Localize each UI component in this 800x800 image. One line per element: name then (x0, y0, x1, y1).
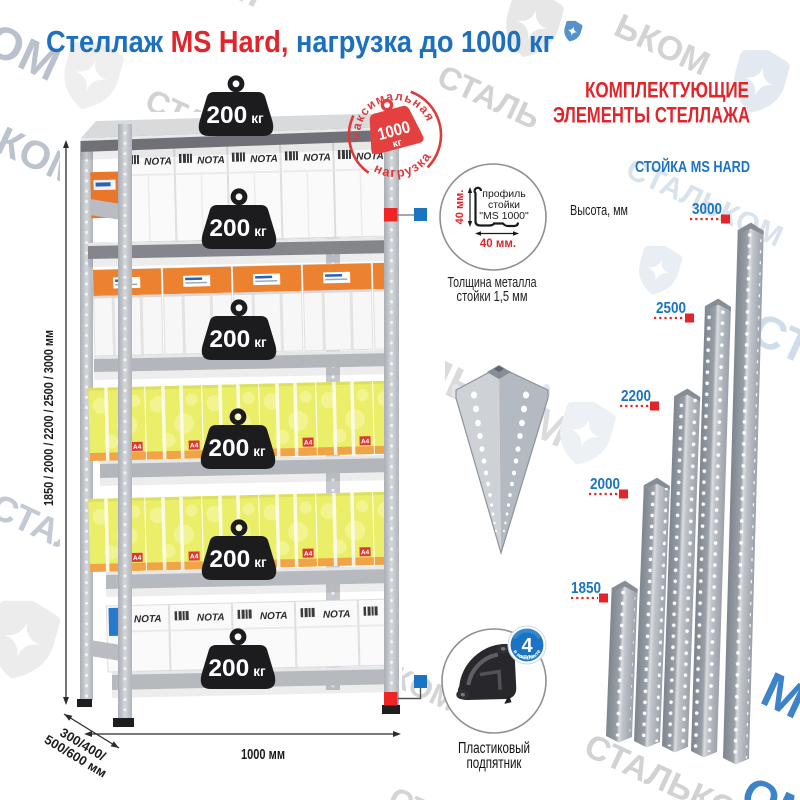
svg-text:Стеллаж MS Hard, нагрузка до 1: Стеллаж MS Hard, нагрузка до 1000 кг (46, 25, 554, 59)
svg-text:3000: 3000 (692, 201, 722, 218)
svg-text:1850 / 2000 / 2200 / 2500 / 30: 1850 / 2000 / 2200 / 2500 / 3000 мм (41, 330, 56, 506)
svg-text:ОМ: ОМ (734, 766, 800, 800)
svg-text:стойки 1,5 мм: стойки 1,5 мм (457, 289, 528, 305)
svg-text:СТАЛЬКОМ: СТАЛЬКОМ (38, 0, 272, 16)
svg-text:1000 мм: 1000 мм (241, 747, 285, 763)
svg-text:2500: 2500 (656, 300, 686, 317)
svg-text:2200: 2200 (621, 388, 651, 405)
svg-text:"MS 1000": "MS 1000" (479, 210, 529, 222)
svg-text:КОМПЛЕКТУЮЩИЕ: КОМПЛЕКТУЮЩИЕ (585, 78, 749, 103)
svg-text:2000: 2000 (590, 476, 620, 493)
svg-text:СТАЛЬ: СТАЛЬ (432, 58, 546, 137)
svg-text:подпятник: подпятник (467, 755, 523, 772)
svg-text:ЭЛЕМЕНТЫ СТЕЛЛАЖА: ЭЛЕМЕНТЫ СТЕЛЛАЖА (553, 103, 750, 128)
svg-text:40 мм.: 40 мм. (480, 238, 516, 250)
svg-text:1850: 1850 (571, 580, 601, 597)
svg-text:М: М (753, 661, 800, 729)
svg-text:ЬКОМ: ЬКОМ (609, 7, 716, 84)
svg-text:СТАЛЬКОМ: СТАЛЬКОМ (383, 780, 561, 800)
svg-text:40 мм.: 40 мм. (454, 190, 466, 225)
svg-text:Высота, мм: Высота, мм (570, 202, 628, 219)
svg-text:СТОЙКА MS HARD: СТОЙКА MS HARD (635, 158, 750, 176)
